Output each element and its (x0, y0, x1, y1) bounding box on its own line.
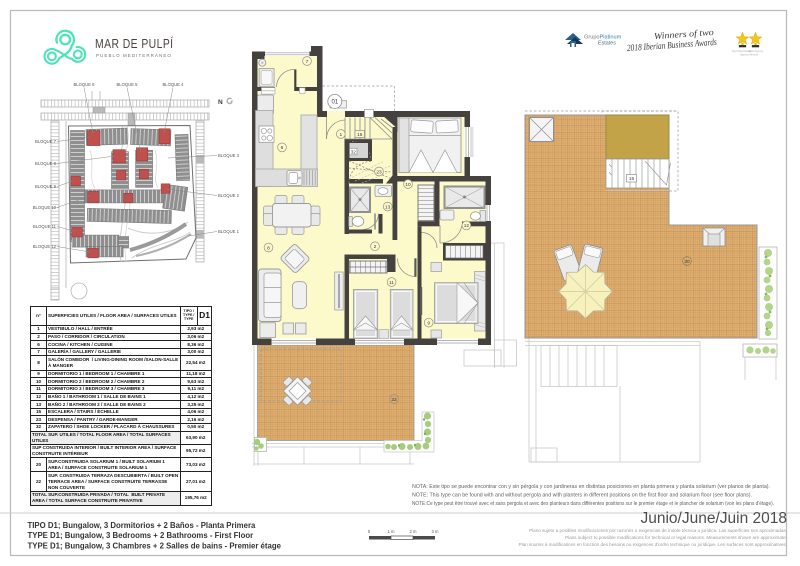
svg-text:22: 22 (391, 397, 397, 403)
svg-text:BLOQUE 9: BLOQUE 9 (35, 184, 57, 189)
svg-text:11: 11 (389, 280, 394, 286)
svg-text:BLOQUE 2: BLOQUE 2 (218, 193, 240, 198)
svg-text:Estates: Estates (598, 41, 616, 47)
svg-text:BLOQUE 8: BLOQUE 8 (35, 161, 57, 166)
svg-text:01: 01 (331, 100, 338, 106)
svg-text:2 m: 2 m (410, 529, 417, 534)
svg-text:Agency Almeria: Agency Almeria (740, 53, 759, 57)
svg-text:NOTE:Ce type peut être trouvé: NOTE:Ce type peut être trouvé avec et sa… (412, 501, 774, 507)
svg-text:Junio/June/Juin 2018: Junio/June/Juin 2018 (640, 510, 787, 527)
svg-text:BLOQUE 3: BLOQUE 3 (218, 153, 240, 158)
svg-text:1: 1 (339, 132, 342, 138)
svg-text:20: 20 (684, 259, 690, 265)
svg-text:MAR DE PULPÍ: MAR DE PULPÍ (95, 36, 174, 51)
svg-text:Plans subject to possible modi: Plans subject to possible modifications … (565, 535, 787, 540)
svg-text:NOTE: This type can be found w: NOTE: This type can be found with and wi… (412, 493, 752, 499)
svg-text:TYPE D1; Bungalow, 3 Chambres: TYPE D1; Bungalow, 3 Chambres + 2 Salles… (28, 542, 282, 551)
svg-text:12: 12 (464, 223, 470, 229)
svg-text:6: 6 (281, 145, 284, 151)
svg-text:TIPO D1; Bungalow, 3 Dormitori: TIPO D1; Bungalow, 3 Dormitorios + 2 Bañ… (28, 521, 256, 530)
svg-text:13: 13 (385, 204, 391, 210)
svg-text:TYPE D1; Bungalow, 3 Bedrooms: TYPE D1; Bungalow, 3 Bedrooms + 2 Bathro… (28, 531, 254, 540)
svg-text:PUEBLO MEDITERRÁNEO: PUEBLO MEDITERRÁNEO (96, 52, 172, 59)
svg-text:Best Agency: Best Agency (749, 49, 764, 53)
svg-text:10: 10 (405, 182, 411, 188)
svg-text:15: 15 (357, 132, 363, 138)
svg-text:1 m: 1 m (388, 529, 395, 534)
svg-text:BLOQUE 6: BLOQUE 6 (74, 82, 96, 87)
svg-text:7: 7 (306, 59, 309, 65)
svg-text:BLOQUE 5: BLOQUE 5 (117, 82, 139, 87)
svg-text:Plano sujeto a posibles modifi: Plano sujeto a posibles modificaciones p… (529, 528, 787, 533)
svg-text:N: N (218, 99, 223, 106)
svg-text:15: 15 (629, 176, 635, 182)
svg-text:23: 23 (376, 169, 382, 175)
svg-text:3 m: 3 m (432, 529, 439, 534)
svg-text:BLOQUE 1: BLOQUE 1 (218, 229, 240, 234)
svg-text:Plan soumis à modifications en: Plan soumis à modifications en fonction … (519, 542, 788, 547)
svg-text:9: 9 (427, 320, 430, 326)
svg-text:BLOQUE 11: BLOQUE 11 (33, 224, 57, 229)
svg-text:8: 8 (267, 245, 270, 251)
svg-text:BLOQUE 12: BLOQUE 12 (33, 244, 57, 249)
svg-text:BLOQUE 7: BLOQUE 7 (35, 139, 57, 144)
svg-text:32: 32 (351, 149, 357, 155)
svg-text:2: 2 (374, 244, 377, 250)
svg-text:NOTA: Este tipo se puede encon: NOTA: Este tipo se puede encontrar con y… (412, 484, 770, 490)
svg-text:BLOQUE 10: BLOQUE 10 (33, 205, 57, 210)
svg-text:BLOQUE 4: BLOQUE 4 (163, 82, 185, 87)
